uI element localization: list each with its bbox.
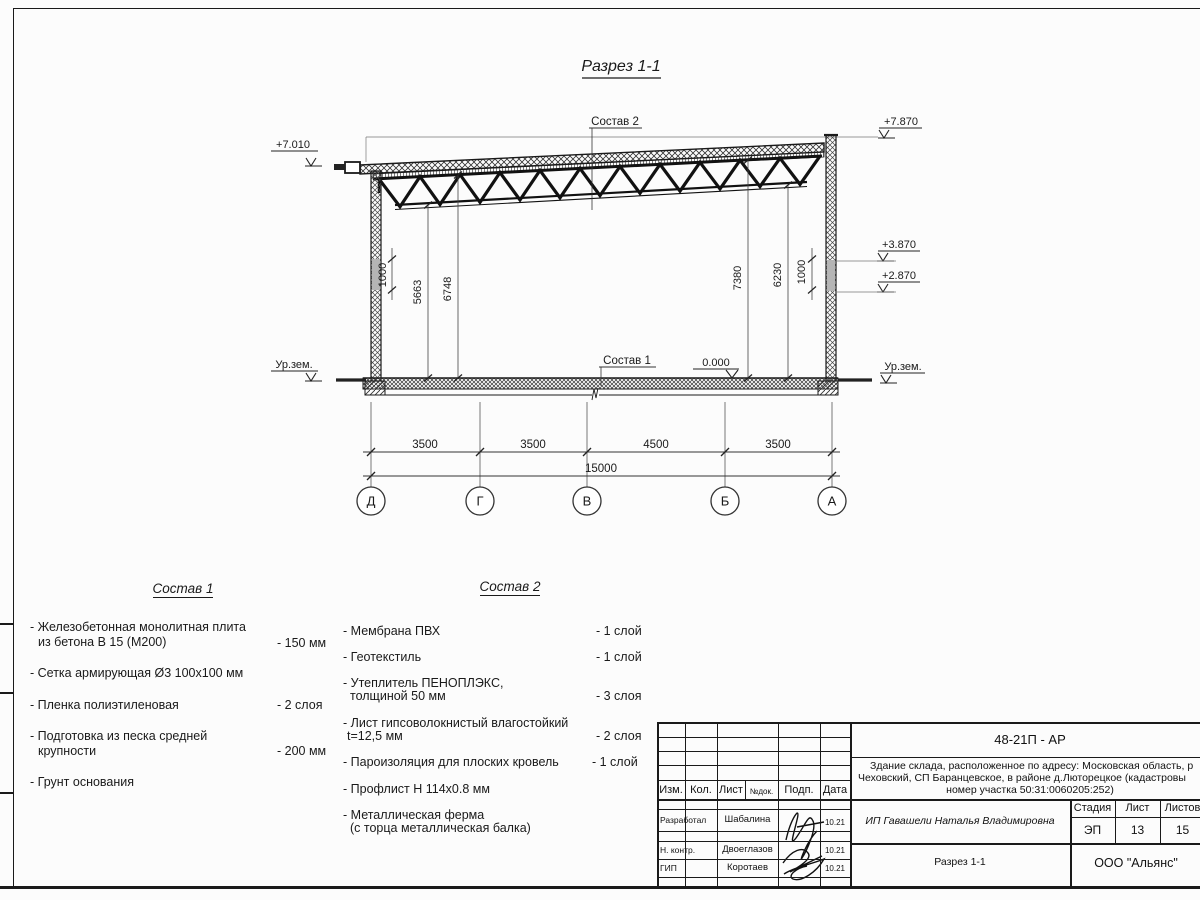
comp2-item-4-value: - 2 слоя: [596, 729, 641, 743]
tb-header-podp: Подп.: [778, 784, 820, 796]
roof-end-cap: [345, 162, 360, 173]
comp1-item-4-value: - 200 мм: [277, 744, 326, 758]
tb-role-razrabotal: Разработал: [660, 815, 706, 825]
axis-label-a: А: [828, 494, 837, 509]
tb-date-2: 10.21: [820, 846, 850, 855]
leader-comp2-label: Состав 2: [591, 116, 639, 128]
comp2-item-5-line1: - Пароизоляция для плоских кровель: [343, 755, 559, 769]
tb-name-korotaev: Коротаев: [717, 862, 778, 873]
comp2-item-1-line1: - Мембрана ПВХ: [343, 624, 440, 638]
tb-header-ndok: №док.: [745, 787, 778, 796]
tb-header-izm: Изм.: [657, 784, 685, 796]
break-symbol: [592, 388, 598, 400]
dim-seg-4: 3500: [765, 439, 791, 451]
comp1-item-1-line1: - Железобетонная монолитная плита: [30, 620, 246, 634]
frame-left: [13, 8, 14, 886]
floor-assembly: [336, 378, 872, 400]
roof-end-block: [334, 164, 345, 170]
right-wall-panel-band: [827, 260, 835, 291]
dim-6230: 6230: [772, 263, 784, 287]
axis-label-v: В: [583, 494, 592, 509]
comp2-item-3-value: - 3 слоя: [596, 689, 641, 703]
tb-header-kol: Кол.: [685, 784, 717, 796]
elev-2870: +2.870: [882, 270, 916, 282]
comp2-item-2-value: - 1 слой: [596, 650, 642, 664]
tb-date-1: 10.21: [820, 818, 850, 827]
comp2-item-4-line1: - Лист гипсоволокнистый влагостойкий: [343, 716, 568, 730]
tb-header-list: Лист: [717, 784, 745, 796]
comp1-item-3-line1: - Пленка полиэтиленовая: [30, 698, 179, 712]
comp2-item-6-line1: - Профлист Н 114х0.8 мм: [343, 782, 490, 796]
dim-7380: 7380: [732, 266, 744, 290]
comp2-item-1-value: - 1 слой: [596, 624, 642, 638]
comp1-item-1-line2: из бетона В 15 (М200): [38, 635, 166, 649]
comp2-item-2-line1: - Геотекстиль: [343, 650, 421, 664]
axis-label-b: Б: [721, 494, 730, 509]
comp1-item-1-value: - 150 мм: [277, 636, 326, 650]
tb-sheet-value: 13: [1115, 823, 1160, 837]
dim-seg-2: 3500: [520, 439, 546, 451]
segment-dimension-labels: 3500 3500 4500 3500 15000: [412, 439, 791, 475]
fold-mark-2: [0, 692, 13, 694]
tb-description-line3: номер участка 50:31:0060205:252): [852, 784, 1200, 796]
axis-label-d: Д: [367, 494, 376, 509]
elev-0000: 0.000: [702, 357, 730, 369]
section-title: Разрез 1-1: [581, 58, 660, 75]
tb-company: ООО "Альянс": [1072, 856, 1200, 870]
tb-client: ИП Гавашели Наталья Владимировна: [852, 815, 1068, 827]
tb-sheets-label: Листов: [1160, 802, 1200, 814]
vertical-dimension-labels: 1000 5663 6748 7380 6230 1000: [377, 260, 808, 304]
ground-label-left: Ур.зем.: [275, 359, 312, 371]
comp1-item-4-line1: - Подготовка из песка средней: [30, 729, 207, 743]
dim-total: 15000: [585, 463, 617, 475]
comp2-item-7-line2: (с торца металлическая балка): [350, 821, 531, 835]
tb-date-3: 10.21: [820, 864, 850, 873]
tb-stage-value: ЭП: [1070, 823, 1115, 837]
comp2-item-3-line2: толщиной 50 мм: [350, 689, 446, 703]
elev-7870: +7.870: [884, 116, 918, 128]
comp2-item-7-line1: - Металлическая ферма: [343, 808, 484, 822]
dim-seg-3: 4500: [643, 439, 669, 451]
signature-1: [786, 813, 824, 859]
comp1-item-4-line2: крупности: [38, 744, 96, 758]
tb-role-nkontr: Н. контр.: [660, 845, 695, 855]
tb-name-dvoeglazov: Двоеглазов: [717, 844, 778, 855]
bottom-dimensions: 3500 3500 4500 3500 15000: [363, 402, 840, 488]
comp2-item-4-line2: t=12,5 мм: [347, 729, 403, 743]
tb-description-line2: Чеховский, СП Баранцевское, в районе д.Л…: [858, 772, 1186, 784]
dim-seg-1: 3500: [412, 439, 438, 451]
leader-comp1-label: Состав 1: [603, 355, 651, 367]
tb-sheet-label: Лист: [1115, 802, 1160, 814]
comp2-item-3-line1: - Утеплитель ПЕНОПЛЭКС,: [343, 676, 503, 690]
tb-header-data: Дата: [820, 784, 850, 796]
tb-role-gip: ГИП: [660, 863, 677, 873]
dim-5663: 5663: [412, 280, 424, 304]
comp1-item-3-value: - 2 слоя: [277, 698, 322, 712]
comp1-item-5-line1: - Грунт основания: [30, 775, 134, 789]
axis-label-g: Г: [476, 494, 483, 509]
tb-name-shabalina: Шабалина: [717, 814, 778, 825]
left-foundation: [365, 381, 385, 395]
frame-top: [13, 8, 1200, 9]
comp2-item-5-value: - 1 слой: [592, 755, 638, 769]
dim-1000-right: 1000: [796, 260, 808, 284]
tb-sheets-value: 15: [1160, 823, 1200, 837]
tb-doc-number: 48-21П - АР: [852, 732, 1200, 747]
comp1-title: Состав 1: [153, 581, 214, 598]
frame-bottom: [0, 886, 1200, 889]
ground-label-right: Ур.зем.: [884, 361, 921, 373]
tb-stage-label: Стадия: [1070, 802, 1115, 814]
drawing-titles: Разрез 1-1 Состав 2 Состав 1: [581, 58, 661, 367]
fold-mark-3: [0, 792, 13, 794]
right-wall: [826, 135, 836, 381]
comp1-item-2-line1: - Сетка армирующая Ø3 100х100 мм: [30, 666, 243, 680]
elev-3870: +3.870: [882, 239, 916, 251]
elev-7010: +7.010: [276, 139, 310, 151]
signatures: [783, 813, 824, 879]
drawing-sheet: { "sheet": { "title": "Разрез 1-1", "lea…: [0, 0, 1200, 900]
comp2-title: Состав 2: [480, 579, 541, 596]
dim-1000-left: 1000: [377, 263, 389, 287]
tb-description-line1: Здание склада, расположенное по адресу: …: [870, 760, 1193, 772]
axis-bubbles: Д Г В Б А: [357, 487, 846, 515]
fold-mark-1: [0, 623, 13, 625]
right-foundation: [818, 381, 838, 395]
dim-6748: 6748: [442, 277, 454, 301]
tb-sheet-title: Разрез 1-1: [852, 856, 1068, 868]
